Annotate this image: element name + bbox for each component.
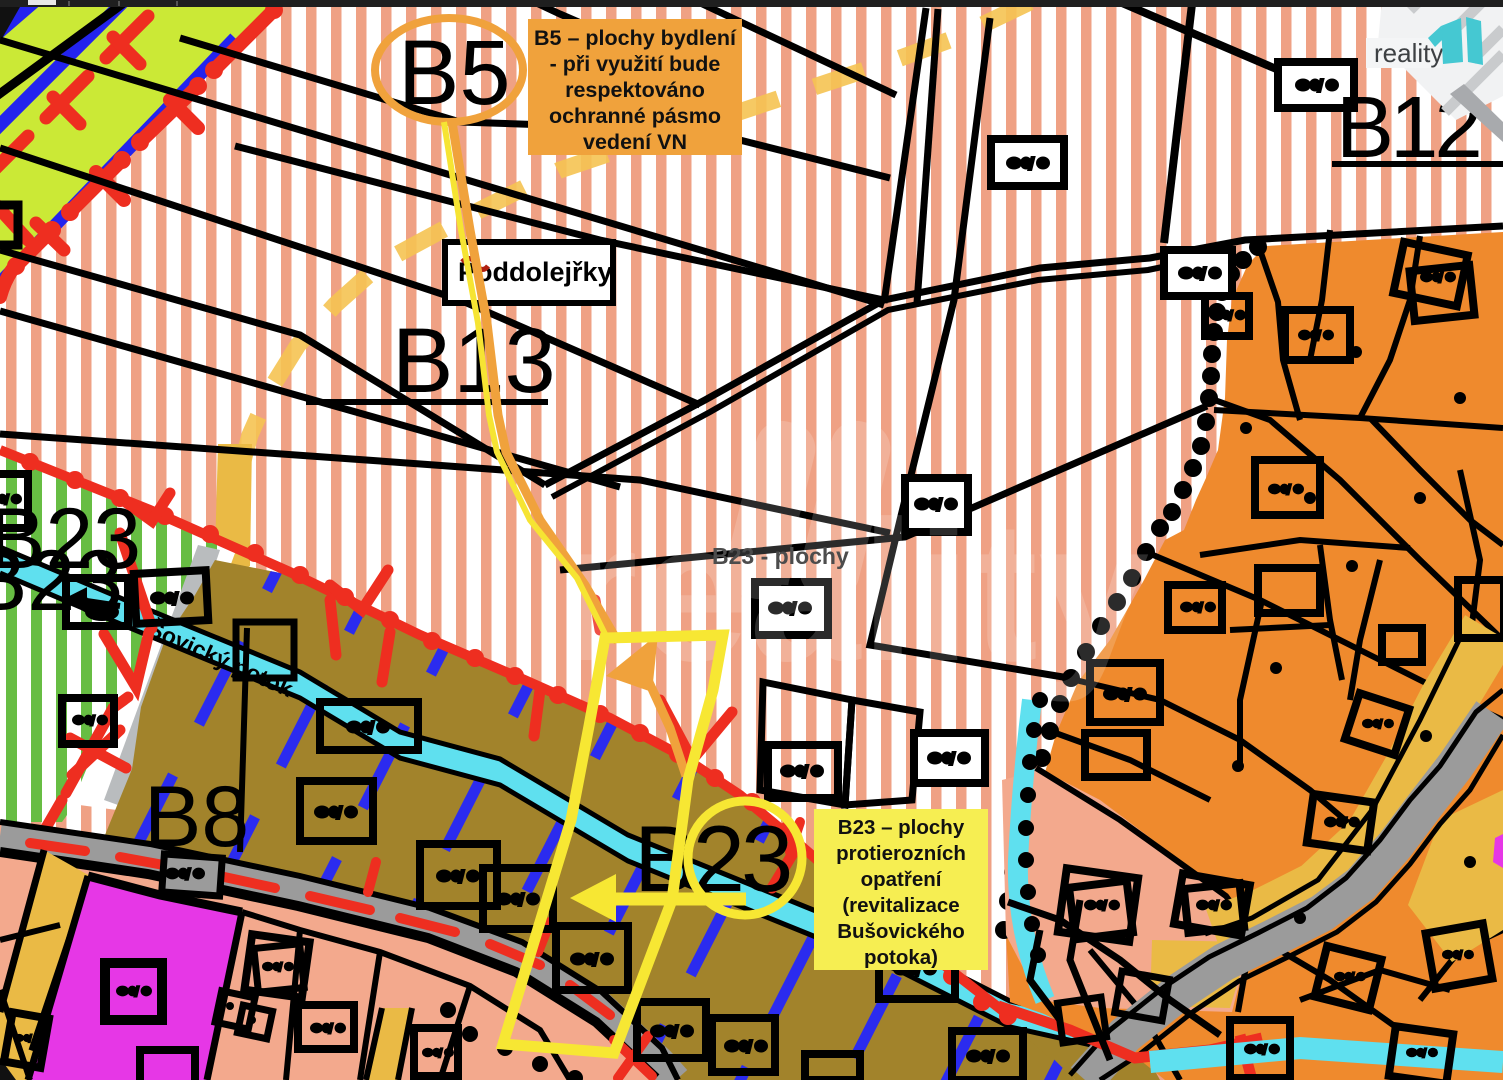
svg-text:B5 – plochy bydlení: B5 – plochy bydlení bbox=[534, 26, 737, 50]
svg-text:B13: B13 bbox=[392, 310, 556, 412]
svg-text:respektováno: respektováno bbox=[565, 78, 705, 102]
svg-text:- při využití bude: - při využití bude bbox=[550, 52, 721, 76]
svg-text:opatření: opatření bbox=[861, 868, 943, 891]
svg-text:B23: B23 bbox=[0, 533, 123, 629]
svg-text:Bušovického: Bušovického bbox=[837, 920, 965, 943]
svg-text:B8: B8 bbox=[144, 769, 249, 865]
svg-text:(revitalizace: (revitalizace bbox=[842, 894, 959, 917]
svg-text:B23 – plochy: B23 – plochy bbox=[838, 816, 965, 839]
svg-text:B23 - plochy: B23 - plochy bbox=[712, 543, 849, 569]
svg-text:protierozních: protierozních bbox=[836, 842, 966, 865]
svg-text:potoka): potoka) bbox=[864, 946, 938, 969]
svg-text:B5: B5 bbox=[398, 22, 511, 124]
svg-text:vedení VN: vedení VN bbox=[583, 130, 687, 154]
svg-text:ochranné pásmo: ochranné pásmo bbox=[549, 104, 721, 128]
